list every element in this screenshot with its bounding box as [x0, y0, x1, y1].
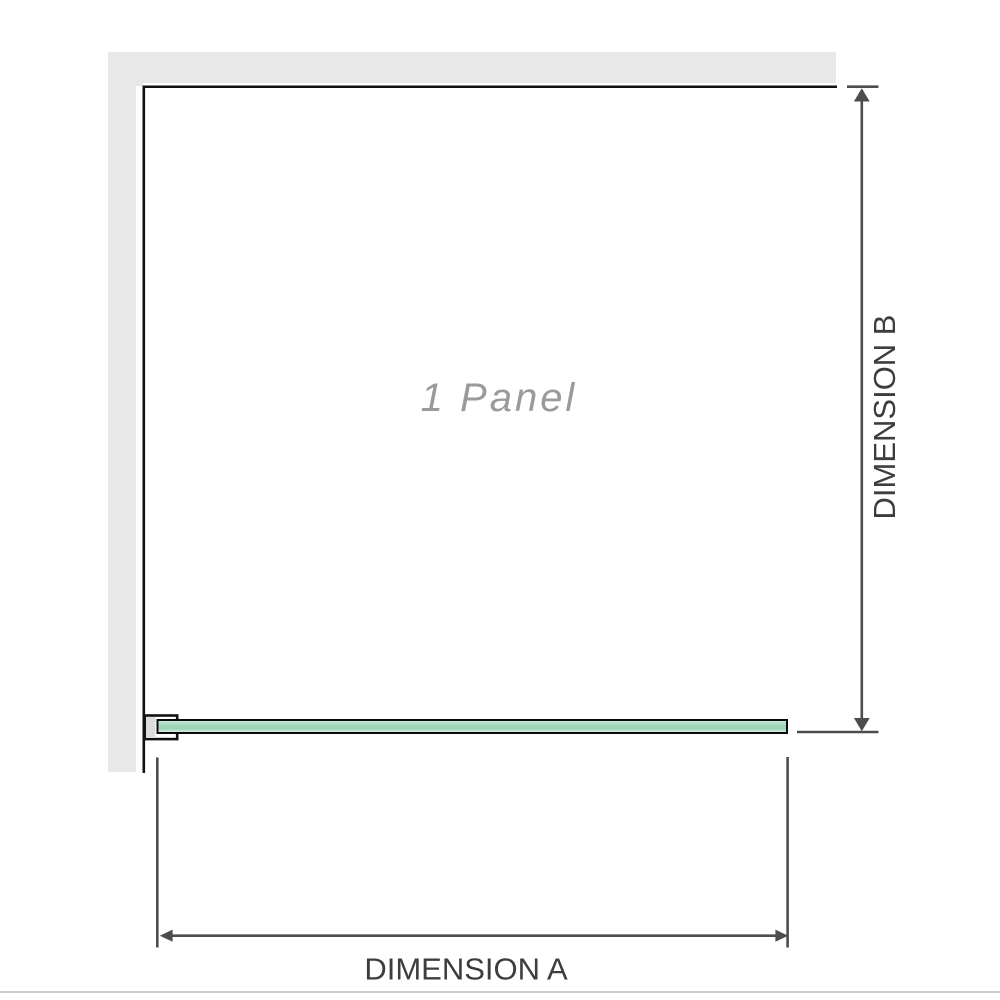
- svg-text:DIMENSION B: DIMENSION B: [867, 315, 902, 520]
- svg-text:1 Panel: 1 Panel: [421, 376, 578, 420]
- svg-text:DIMENSION A: DIMENSION A: [364, 952, 568, 987]
